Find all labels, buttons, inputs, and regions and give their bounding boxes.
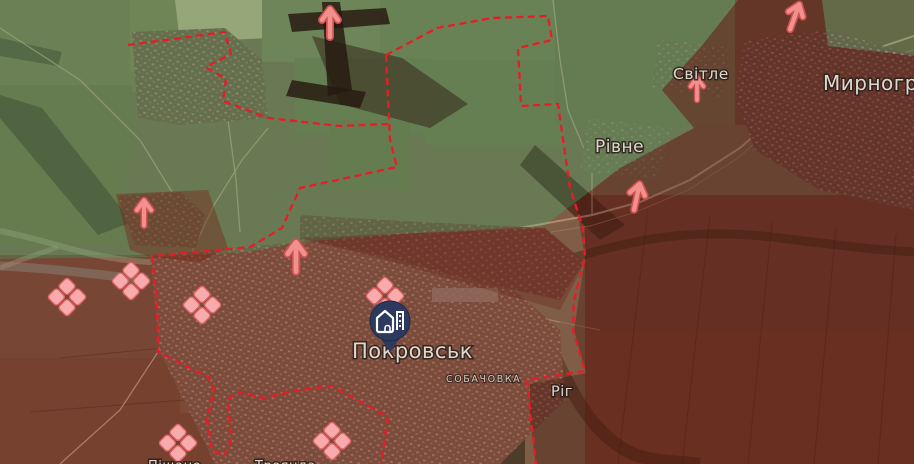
- settlement-label-rih: Ріг: [551, 384, 573, 400]
- settlement-label-pokrovsk: Покровськ: [352, 339, 473, 363]
- settlement-label-pishchane-cut: Піщане: [148, 459, 201, 464]
- settlement-label-svitle: Світле: [673, 65, 729, 83]
- control-zones: [0, 0, 914, 464]
- map-canvas[interactable]: Покровськ СОБАЧОВКА Ріг Рівне Світле Мир…: [0, 0, 914, 464]
- settlement-label-rivne: Рівне: [595, 137, 644, 157]
- friendly-zone-overlay-ne: [822, 0, 914, 54]
- settlement-label-troianda-cut: Троянда: [254, 459, 316, 464]
- district-label-sobachovka: СОБАЧОВКА: [446, 374, 521, 385]
- settlement-label-myrnohrad: Мирноград: [823, 71, 914, 95]
- map-screen: Покровськ СОБАЧОВКА Ріг Рівне Світле Мир…: [0, 0, 914, 464]
